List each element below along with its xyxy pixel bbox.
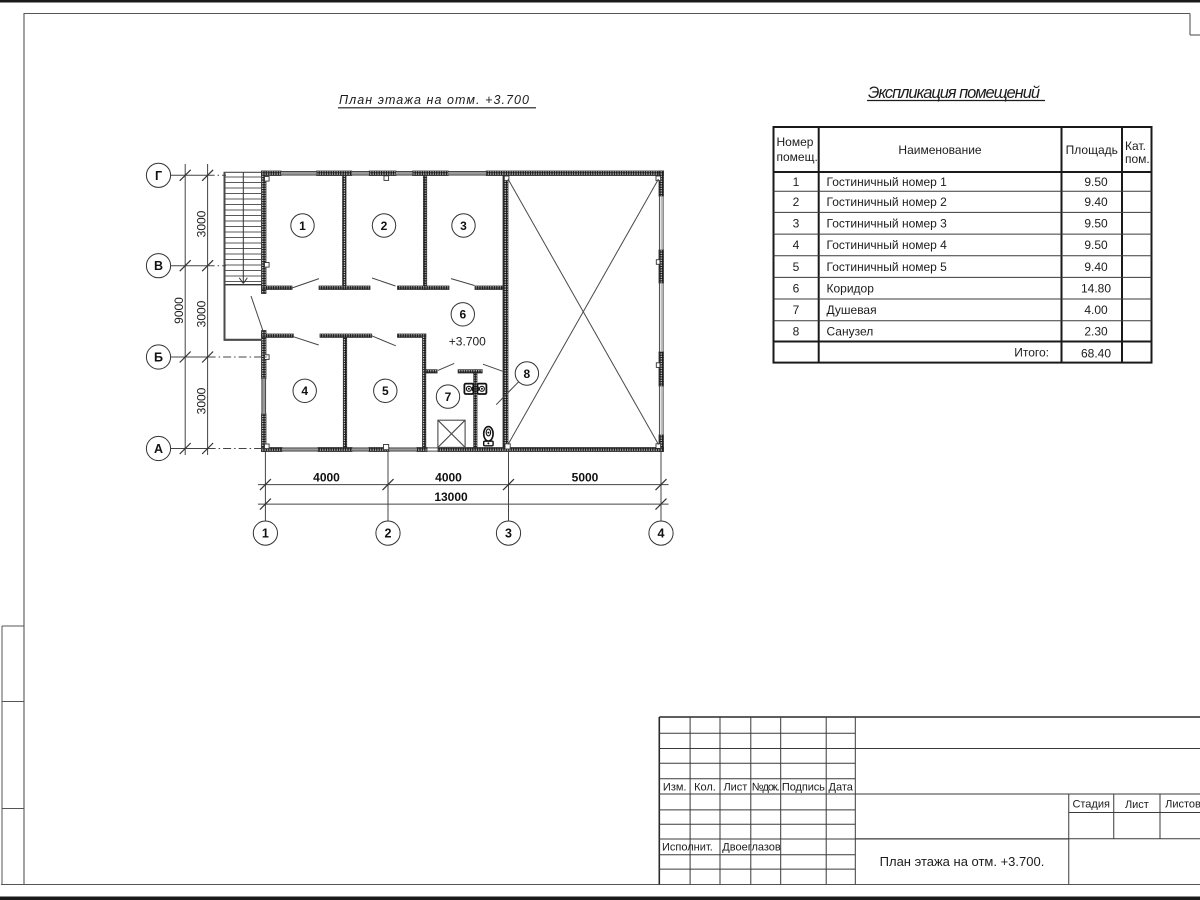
svg-text:1: 1 [262,527,269,541]
svg-text:А: А [154,442,163,456]
svg-text:Исполнит.: Исполнит. [662,842,713,854]
svg-text:Санузел: Санузел [827,324,874,338]
svg-text:4.00: 4.00 [1084,303,1108,317]
svg-text:пом.: пом. [1125,152,1150,166]
svg-text:Б: Б [154,351,163,365]
svg-text:2.30: 2.30 [1084,324,1108,338]
svg-text:Лист: Лист [723,781,747,793]
svg-text:3: 3 [505,527,512,541]
svg-text:Дата: Дата [829,781,854,793]
svg-text:Лист: Лист [1125,799,1149,811]
svg-text:Номер: Номер [777,135,814,149]
svg-text:5000: 5000 [572,471,599,485]
svg-text:9.40: 9.40 [1084,260,1108,274]
svg-text:План этажа на отм. +3.700: План этажа на отм. +3.700 [339,93,529,107]
svg-text:Гостиничный номер 4: Гостиничный номер 4 [827,238,948,252]
svg-text:Коридор: Коридор [827,282,875,296]
svg-text:3000: 3000 [195,387,209,414]
svg-text:5: 5 [793,260,800,274]
svg-text:4: 4 [301,384,308,398]
svg-text:3000: 3000 [195,210,209,237]
svg-text:9.40: 9.40 [1084,195,1108,209]
svg-text:Кат.: Кат. [1125,139,1146,153]
svg-text:4000: 4000 [313,471,340,485]
svg-text:5: 5 [382,384,389,398]
svg-text:Двоеглазов: Двоеглазов [722,842,781,854]
svg-text:1: 1 [793,175,800,189]
svg-text:Итого:: Итого: [1014,346,1049,360]
svg-text:9000: 9000 [172,297,186,324]
svg-text:Экспликация помещений: Экспликация помещений [868,84,1040,102]
svg-text:Гостиничный номер 3: Гостиничный номер 3 [827,217,948,231]
svg-text:Душевая: Душевая [827,303,877,317]
svg-text:2: 2 [381,219,388,233]
svg-text:Кол.: Кол. [694,781,716,793]
svg-text:6: 6 [459,308,466,322]
svg-text:4000: 4000 [435,471,462,485]
svg-text:2: 2 [793,195,800,209]
svg-text:Изм.: Изм. [663,781,687,793]
svg-text:14.80: 14.80 [1081,282,1111,296]
svg-text:13000: 13000 [434,490,468,504]
svg-text:8: 8 [524,367,531,381]
svg-text:В: В [154,259,163,273]
svg-text:4: 4 [658,527,665,541]
svg-text:Гостиничный номер 1: Гостиничный номер 1 [827,175,948,189]
svg-text:3000: 3000 [195,300,209,327]
svg-text:+3.700: +3.700 [449,335,486,349]
svg-text:68.40: 68.40 [1081,347,1111,361]
svg-text:9.50: 9.50 [1084,217,1108,231]
svg-text:Гостиничный номер 5: Гостиничный номер 5 [827,260,948,274]
svg-text:№док.: №док. [752,781,780,793]
svg-text:7: 7 [445,390,452,404]
svg-text:Листов: Листов [1165,798,1200,810]
svg-text:План этажа на отм. +3.700.: План этажа на отм. +3.700. [880,854,1045,869]
svg-text:Стадия: Стадия [1072,798,1110,810]
svg-text:Наименование: Наименование [898,143,982,157]
svg-text:6: 6 [793,282,800,296]
svg-text:Г: Г [155,169,162,183]
svg-text:3: 3 [460,219,467,233]
svg-text:Гостиничный номер 2: Гостиничный номер 2 [827,195,948,209]
svg-text:3: 3 [793,217,800,231]
svg-text:Подпись: Подпись [782,781,825,793]
svg-text:помещ.: помещ. [777,150,818,164]
svg-text:7: 7 [793,303,800,317]
svg-text:2: 2 [385,527,392,541]
svg-text:9.50: 9.50 [1084,238,1108,252]
svg-text:1: 1 [299,219,306,233]
svg-text:8: 8 [793,324,800,338]
svg-text:4: 4 [793,238,800,252]
svg-text:Площадь: Площадь [1066,143,1118,157]
svg-text:9.50: 9.50 [1084,175,1108,189]
